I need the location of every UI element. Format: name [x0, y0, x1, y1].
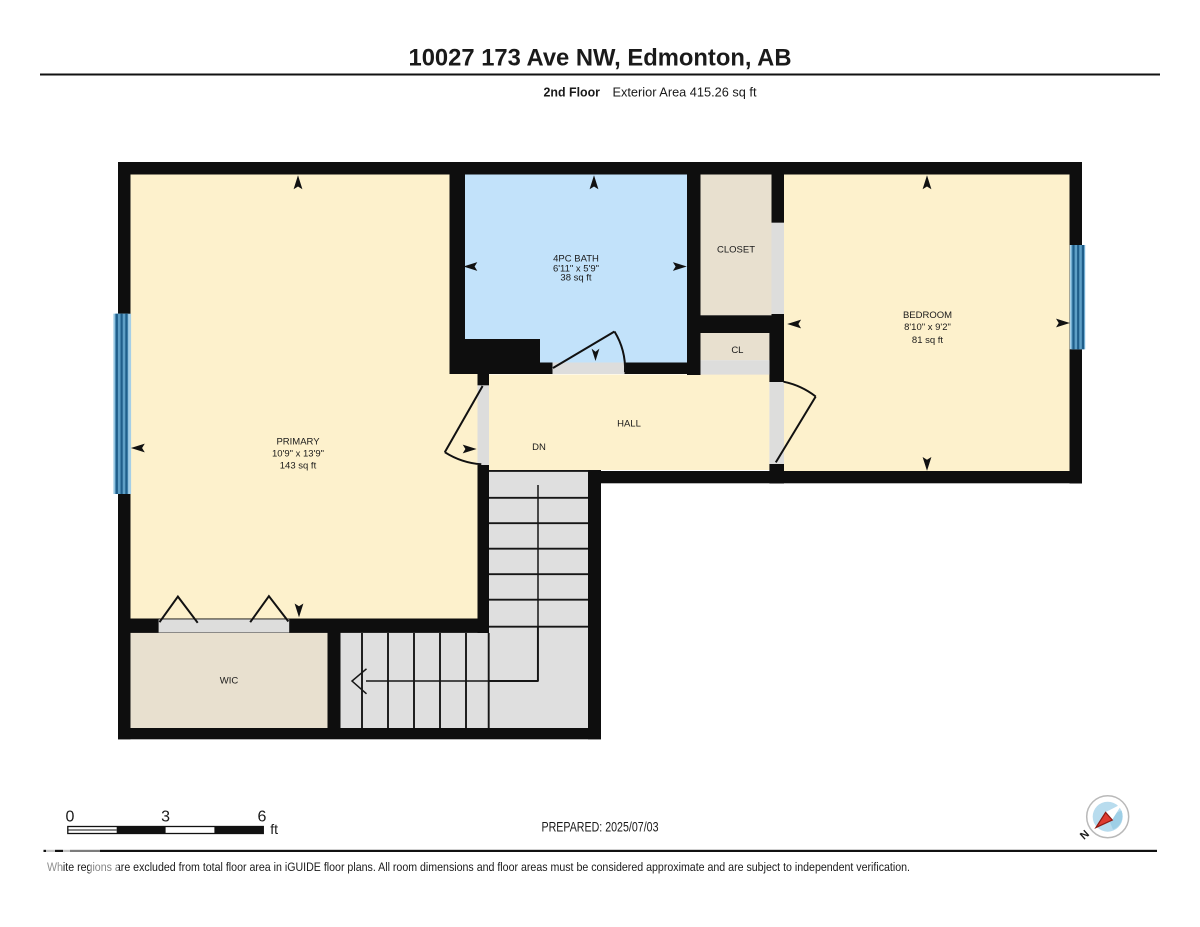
svg-text:Exterior Area 415.26 sq ft: Exterior Area 415.26 sq ft [613, 85, 757, 100]
svg-text:WIC: WIC [220, 676, 239, 687]
svg-text:2nd Floor: 2nd Floor [544, 85, 601, 100]
svg-text:HALL: HALL [617, 419, 641, 430]
svg-text:8'10" x 9'2": 8'10" x 9'2" [904, 322, 951, 333]
svg-text:143 sq ft: 143 sq ft [280, 461, 317, 472]
svg-text:3: 3 [161, 809, 170, 826]
svg-text:10'9" x 13'9": 10'9" x 13'9" [272, 449, 324, 460]
svg-text:81 sq ft: 81 sq ft [912, 335, 944, 346]
svg-text:PREPARED: 2025/07/03: PREPARED: 2025/07/03 [542, 819, 659, 834]
svg-text:BEDROOM: BEDROOM [903, 310, 952, 321]
svg-text:CLOSET: CLOSET [717, 245, 755, 256]
svg-text:CL: CL [731, 345, 743, 356]
svg-text:PRIMARY: PRIMARY [276, 437, 320, 448]
svg-text:0: 0 [65, 809, 74, 826]
svg-text:DN: DN [532, 442, 546, 453]
svg-text:10027 173 Ave NW, Edmonton, AB: 10027 173 Ave NW, Edmonton, AB [409, 45, 792, 72]
svg-text:38 sq ft: 38 sq ft [560, 273, 592, 284]
svg-text:White regions are excluded fro: White regions are excluded from total fl… [47, 860, 910, 874]
svg-text:ft: ft [270, 821, 278, 837]
svg-text:6: 6 [258, 809, 267, 826]
